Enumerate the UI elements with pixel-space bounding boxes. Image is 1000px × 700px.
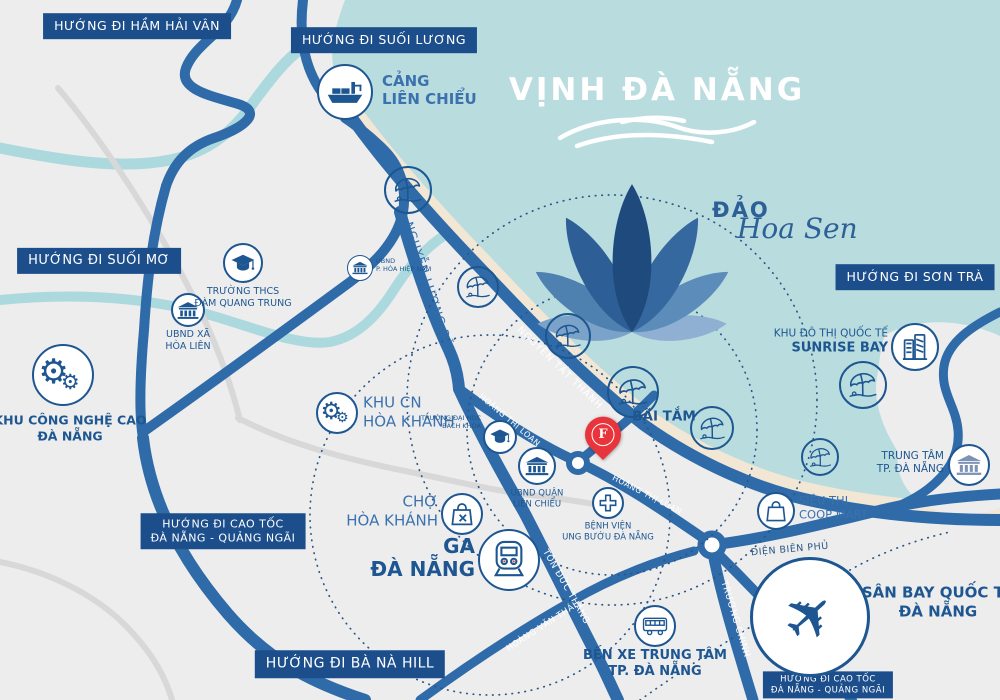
badge-line1: HƯỚNG ĐI CAO TỐC xyxy=(151,517,296,531)
shopping-bag-icon xyxy=(450,501,474,527)
label-sunrise-bay: KHU ĐÔ THỊ QUỐC TẾSUNRISE BAY xyxy=(774,327,888,356)
island-label-script: Hoa Sen xyxy=(737,212,858,245)
badge-cao-toc-right: HƯỚNG ĐI CAO TỐC ĐÀ NẴNG - QUẢNG NGÃI xyxy=(763,671,893,698)
bus-icon xyxy=(642,615,668,637)
label-benh-vien: BỆNH VIỆNUNG BƯỚU ĐÀ NẴNG xyxy=(562,521,654,542)
label-ben-xe: BẾN XE TRUNG TÂMTP. ĐÀ NẴNG xyxy=(583,648,727,681)
label-ga-da-nang: GAĐÀ NẴNG xyxy=(370,535,475,581)
roundabout-small xyxy=(569,454,587,472)
label-bai-tam: BÃI TẮM xyxy=(632,409,696,426)
badge-line2: ĐÀ NẴNG - QUẢNG NGÃI xyxy=(151,531,296,545)
river-north xyxy=(0,48,302,164)
market-marker xyxy=(441,493,483,535)
government-building-icon xyxy=(956,454,982,476)
government-building-icon xyxy=(525,456,549,476)
graduation-cap-icon xyxy=(230,253,256,274)
label-trung-tam-tp: TRUNG TÂMTP. ĐÀ NẴNG xyxy=(877,450,944,476)
ship-icon xyxy=(325,79,365,105)
beach-umbrella-icon xyxy=(464,273,492,301)
highrise-building-icon xyxy=(902,332,928,362)
label-ubnd-hoa-hiep-nam: UBNDP. HÒA HIỆP NAM xyxy=(376,258,431,274)
graduation-cap-icon xyxy=(489,428,511,446)
beach-umbrella-icon xyxy=(698,414,727,443)
label-truong-thcs: TRƯỜNG THCSĐÀM QUANG TRUNG xyxy=(194,286,291,310)
airplane-icon: ✈ xyxy=(770,577,850,658)
school-thcs-marker xyxy=(223,243,263,283)
project-logo-letter: F xyxy=(592,423,615,446)
beach-marker xyxy=(384,166,432,214)
badge-ham-hai-van: HƯỚNG ĐI HẦM HẢI VÂN xyxy=(43,13,231,39)
coop-mart-marker xyxy=(757,492,795,530)
label-ubnd-hoa-lien: UBND XÃHÒA LIÊN xyxy=(165,329,210,353)
beach-umbrella-icon xyxy=(847,369,879,401)
beach-umbrella-icon xyxy=(553,321,583,351)
industrial-zone-marker: ⚙⚙ xyxy=(316,392,358,434)
label-coop-mart: SIÊU THỊCOOP MART xyxy=(799,494,868,523)
beach-umbrella-icon xyxy=(808,445,833,470)
ubnd-hoa-hiep-nam-marker xyxy=(347,255,373,281)
gear-icon: ⚙ xyxy=(61,372,80,393)
port-marker xyxy=(317,64,373,120)
beach-umbrella-icon xyxy=(616,375,650,409)
train-icon xyxy=(490,539,528,581)
badge-son-tra: HƯỚNG ĐI SƠN TRÀ xyxy=(836,264,995,290)
label-ubnd-quan-lien-chieu: UBND QUẬNLIÊN CHIỂU xyxy=(511,488,564,509)
beach-marker xyxy=(690,406,734,450)
roundabout-dien-bien-phu xyxy=(701,534,723,556)
road-label-hoang-van-thai: HOÀNG VĂN THÁI xyxy=(504,599,579,654)
sunrise-bay-marker xyxy=(891,323,939,371)
beach-marker xyxy=(839,361,887,409)
danang-location-map: NGUYỄN LƯƠNG BẰNG NGUYỄN TẤT THÀNH HOÀNG… xyxy=(0,0,1000,700)
badge-suoi-mo: HƯỚNG ĐI SUỐI MƠ xyxy=(17,248,181,274)
badge-cao-toc-left: HƯỚNG ĐI CAO TỐC ĐÀ NẴNG - QUẢNG NGÃI xyxy=(141,513,306,549)
badge-line2: ĐÀ NẴNG - QUẢNG NGÃI xyxy=(771,685,885,696)
wave-icon xyxy=(552,112,762,152)
label-truong-dai-hoc: TRƯỜNG ĐẠI HỌCBÁCH KHOA xyxy=(421,415,481,431)
university-marker xyxy=(483,420,517,454)
bay-title: VỊNH ĐÀ NẴNG xyxy=(509,72,805,108)
shopping-bag-icon xyxy=(765,499,787,523)
gear-icon: ⚙ xyxy=(336,411,349,425)
badge-ba-na-hill: HƯỚNG ĐI BÀ NÀ HILL xyxy=(255,650,445,678)
label-cho-hoa-khanh: CHỢHÒA KHÁNH xyxy=(346,492,438,530)
hospital-marker xyxy=(592,487,624,519)
beach-umbrella-icon xyxy=(392,174,424,206)
hi-tech-park-marker: ⚙⚙ xyxy=(32,344,94,406)
beach-marker xyxy=(801,438,839,476)
beach-marker xyxy=(457,266,499,308)
airport-marker: ✈ xyxy=(750,557,870,677)
label-khu-cong-nghe-cao: KHU CÔNG NGHỆ CAOĐÀ NẴNG xyxy=(0,412,147,443)
badge-line1: HƯỚNG ĐI CAO TỐC xyxy=(771,674,885,685)
city-center-marker xyxy=(948,444,990,486)
government-building-icon xyxy=(352,261,368,275)
label-cang-lien-chieu: CẢNGLIÊN CHIỂU xyxy=(382,72,477,108)
badge-suoi-luong: HƯỚNG ĐI SUỐI LƯƠNG xyxy=(291,27,477,53)
label-san-bay: SÂN BAY QUỐC TẾĐÀ NẴNG xyxy=(862,583,1000,621)
ubnd-lien-chieu-marker xyxy=(518,447,556,485)
bus-station-marker xyxy=(634,605,676,647)
road-west-1 xyxy=(140,186,166,438)
medical-cross-icon xyxy=(598,493,618,513)
train-station-marker xyxy=(478,529,540,591)
beach-marker xyxy=(545,313,591,359)
